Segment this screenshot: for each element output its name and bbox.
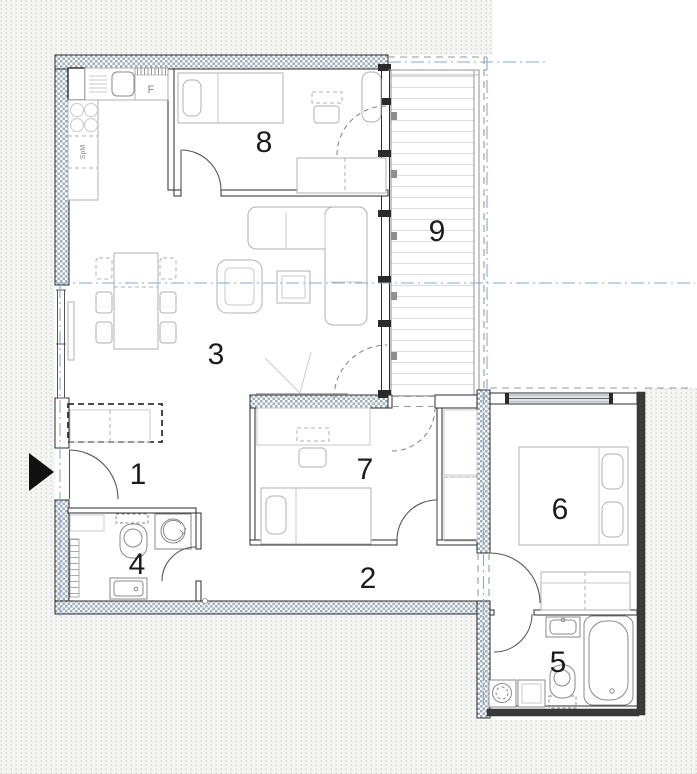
room-6-label: 6 (552, 493, 569, 526)
room-8-label: 8 (256, 126, 273, 159)
dining-chair (96, 292, 112, 313)
pillow-left (602, 454, 623, 489)
floor-plan-page: F SpM (0, 0, 697, 774)
room-7-label: 7 (357, 453, 374, 486)
chair-room8 (314, 106, 339, 123)
cabinet-room8 (362, 72, 381, 122)
fridge-label: F (148, 84, 155, 96)
kitchen-corner-unit (68, 68, 85, 100)
dining-chair (96, 322, 112, 343)
dishwasher-label: SpM (80, 145, 87, 160)
radiator-living (68, 302, 74, 360)
pillow-room8 (183, 80, 201, 116)
pillow-right (602, 502, 623, 537)
room-5-label: 5 (550, 646, 567, 679)
room-1-label: 1 (130, 458, 147, 491)
radiator-wc (70, 539, 79, 597)
dining-chair (160, 292, 176, 313)
dining-chair (160, 322, 176, 343)
room-3-label: 3 (208, 338, 225, 371)
floor-plan-svg: F SpM (0, 0, 697, 774)
chair-room7 (299, 448, 326, 467)
wardrobe-room6 (541, 572, 630, 610)
room-4-label: 4 (129, 548, 146, 581)
sofa-side (325, 207, 367, 325)
washing-machine-bath (489, 680, 516, 707)
kitchen-sink (112, 72, 134, 96)
wardrobe-room8 (297, 158, 386, 193)
washing-machine-wc (155, 514, 191, 549)
room-9-label: 9 (429, 215, 446, 248)
room-2-label: 2 (360, 562, 377, 595)
pillow-room7 (266, 496, 286, 534)
dining-table (114, 253, 158, 349)
